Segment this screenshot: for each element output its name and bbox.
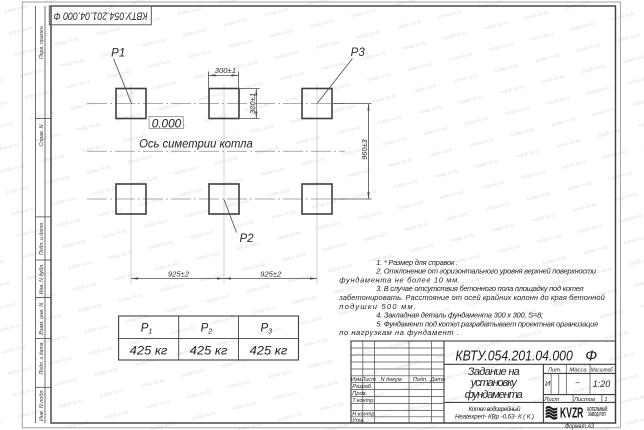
svg-text:0.000: 0.000 xyxy=(152,116,182,130)
svg-text:425 кг: 425 кг xyxy=(190,346,228,358)
svg-text:4. Закладная деталь фундамент: 4. Закладная деталь фундамента 300 х 300… xyxy=(376,311,543,320)
svg-text:Пров.: Пров. xyxy=(352,391,367,397)
svg-text:Heatexpert- КВр -0,63- К ( К ): Heatexpert- КВр -0,63- К ( К ) xyxy=(455,413,534,420)
svg-text:Листов: Листов xyxy=(573,397,595,403)
svg-text:Лит.: Лит. xyxy=(547,367,562,373)
svg-text:ЗАВОД РЭП: ЗАВОД РЭП xyxy=(588,412,606,418)
svg-text:Лист: Лист xyxy=(360,377,376,383)
svg-text:300±1: 300±1 xyxy=(250,93,257,114)
svg-text:Инв. N подл.: Инв. N подл. xyxy=(39,389,45,421)
svg-text:Лист: Лист xyxy=(543,397,559,403)
svg-text:1:20: 1:20 xyxy=(593,379,611,389)
svg-text:Подп. и дата: Подп. и дата xyxy=(39,342,45,375)
svg-text:фундамента не более 10 мм.: фундамента не более 10 мм. xyxy=(339,275,460,284)
svg-text:–: – xyxy=(575,378,580,387)
svg-text:Масса: Масса xyxy=(569,367,587,373)
svg-text:Котел водогрейный: Котел водогрейный xyxy=(469,405,521,413)
svg-text:Перв. примен.: Перв. примен. xyxy=(39,25,45,59)
svg-text:425 кг: 425 кг xyxy=(130,346,168,358)
svg-text:по нагрузкам на фундамент .: по нагрузкам на фундамент . xyxy=(339,328,459,337)
svg-text:925±2: 925±2 xyxy=(260,271,281,278)
svg-text:Инв. N дубл.: Инв. N дубл. xyxy=(39,263,45,294)
svg-text:Р3: Р3 xyxy=(351,47,366,59)
svg-text:Подп.: Подп. xyxy=(413,377,428,383)
svg-text:Р1: Р1 xyxy=(111,47,125,59)
svg-text:Справ. N: Справ. N xyxy=(39,124,45,147)
svg-text:Р2: Р2 xyxy=(239,233,254,245)
svg-text:N докум.: N докум. xyxy=(380,377,403,383)
svg-text:300±1: 300±1 xyxy=(215,68,236,75)
svg-text:фундамента: фундамента xyxy=(465,389,523,401)
svg-text:1: 1 xyxy=(604,397,607,403)
svg-text:5. Фундамент под котел разраб: 5. Фундамент под котел разрабатывает про… xyxy=(376,319,598,328)
svg-text:КВТУ.054.201.04.000: КВТУ.054.201.04.000 xyxy=(455,348,573,365)
svg-text:Формат А3: Формат А3 xyxy=(565,423,594,430)
svg-text:подушки 500 мм.: подушки 500 мм. xyxy=(339,302,416,311)
svg-text:И: И xyxy=(545,379,551,388)
svg-text:Масштаб: Масштаб xyxy=(591,367,614,373)
svg-text:Разраб.: Разраб. xyxy=(352,384,372,390)
svg-text:425 кг: 425 кг xyxy=(250,346,288,358)
svg-text:Ф: Ф xyxy=(585,348,597,365)
svg-text:Т.контр.: Т.контр. xyxy=(352,398,375,404)
svg-text:Ось симетрии котла: Ось симетрии котла xyxy=(139,136,253,150)
svg-text:установку: установку xyxy=(470,377,519,389)
svg-text:КВТУ.054.201.04.000 Ф: КВТУ.054.201.04.000 Ф xyxy=(54,10,148,22)
svg-text:960±3: 960±3 xyxy=(362,139,369,160)
svg-text:Утв.: Утв. xyxy=(351,418,365,424)
svg-text:KVZR: KVZR xyxy=(560,404,583,421)
svg-text:925±2: 925±2 xyxy=(168,271,189,278)
svg-text:Н.контр.: Н.контр. xyxy=(352,412,376,418)
svg-text:Взам. инв. N: Взам. инв. N xyxy=(39,302,45,335)
svg-text:3. В случае отсутствия бетонн: 3. В случае отсутствия бетонного пола пл… xyxy=(376,284,584,293)
svg-text:1. * Размер для справок .: 1. * Размер для справок . xyxy=(376,258,458,267)
svg-text:забетонировать. Расстояние от: забетонировать. Расстояние от осей крайн… xyxy=(338,293,605,302)
svg-text:Подп. и дата: Подп. и дата xyxy=(39,222,45,255)
svg-text:Дата: Дата xyxy=(429,377,445,383)
svg-text:Задание на: Задание на xyxy=(468,366,520,378)
svg-text:2. Отклонение от горизонтальн: 2. Отклонение от горизонтального уровня … xyxy=(375,267,597,276)
